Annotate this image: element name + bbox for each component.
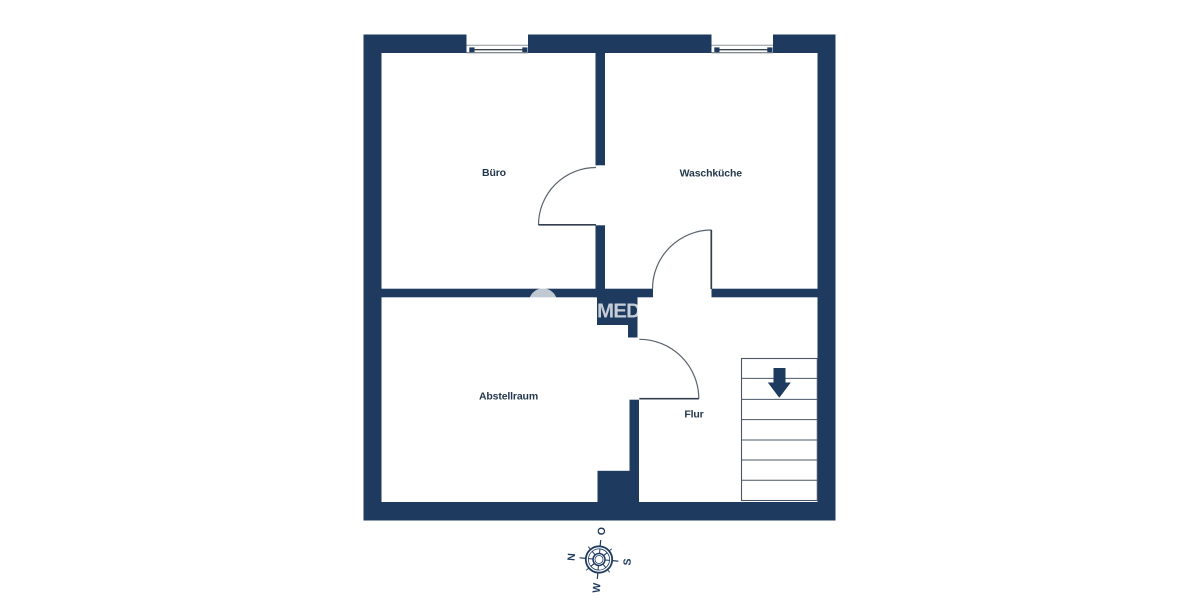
svg-text:MED: MED bbox=[597, 300, 640, 323]
svg-text:Abstellraum: Abstellraum bbox=[479, 391, 538, 403]
svg-text:W: W bbox=[591, 582, 604, 593]
svg-text:S: S bbox=[621, 558, 634, 566]
svg-text:Büro: Büro bbox=[482, 167, 506, 179]
svg-text:Flur: Flur bbox=[684, 408, 703, 420]
svg-text:N: N bbox=[566, 553, 579, 562]
svg-text:Waschküche: Waschküche bbox=[680, 167, 743, 179]
svg-text:O: O bbox=[596, 527, 609, 536]
